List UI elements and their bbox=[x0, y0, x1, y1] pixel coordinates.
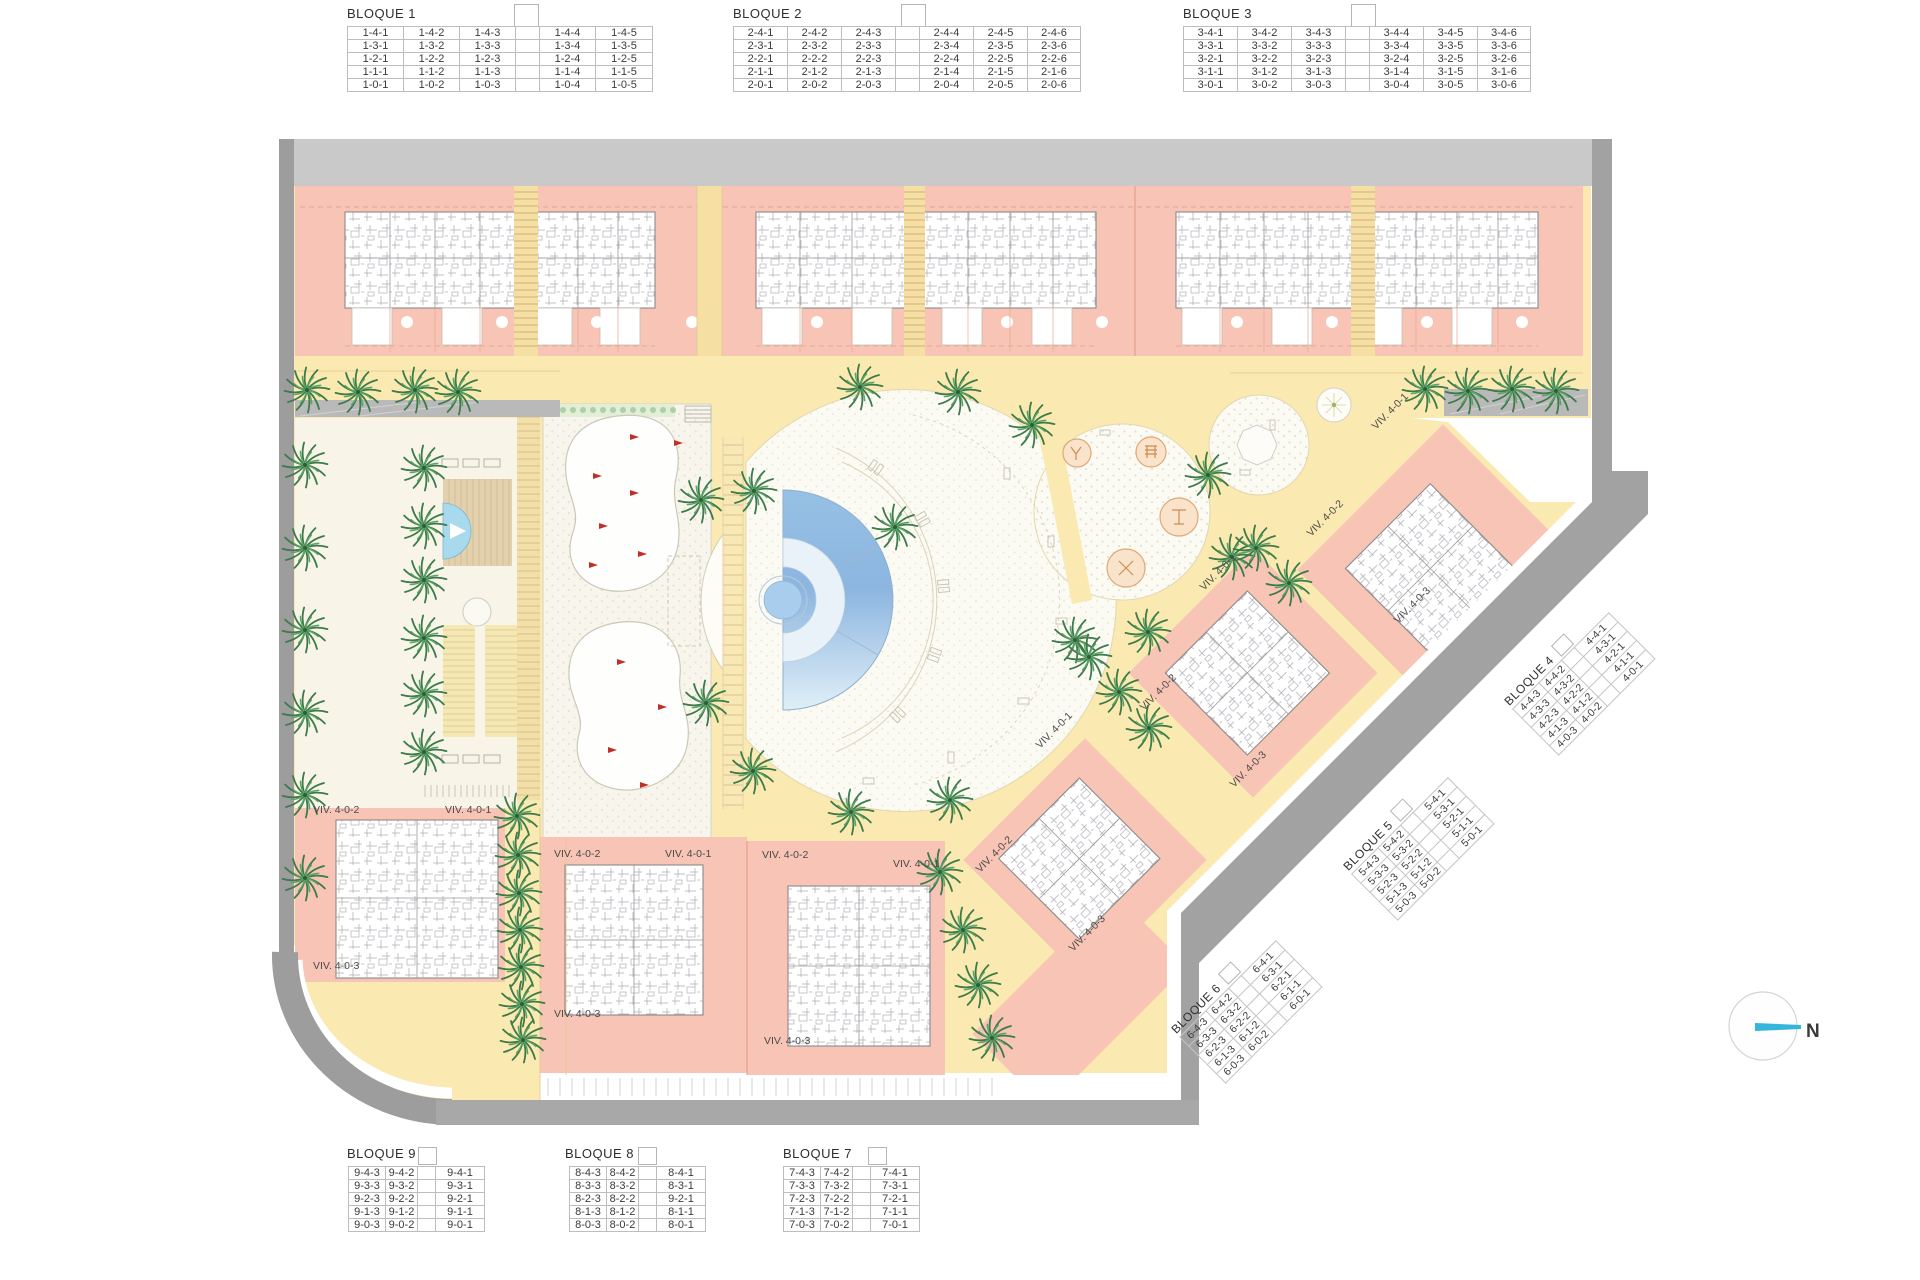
svg-text:N: N bbox=[1806, 1021, 1820, 1042]
svg-text:VIV. 4-0-2: VIV. 4-0-2 bbox=[762, 849, 808, 861]
svg-text:VIV. 4-0-1: VIV. 4-0-1 bbox=[445, 804, 491, 816]
svg-text:VIV. 4-0-1: VIV. 4-0-1 bbox=[893, 858, 939, 870]
svg-text:VIV. 4-0-2: VIV. 4-0-2 bbox=[313, 804, 359, 816]
svg-text:VIV. 4-0-3: VIV. 4-0-3 bbox=[554, 1008, 600, 1020]
svg-text:VIV. 4-0-3: VIV. 4-0-3 bbox=[764, 1035, 810, 1047]
svg-text:VIV. 4-0-1: VIV. 4-0-1 bbox=[665, 848, 711, 860]
svg-text:VIV. 4-0-3: VIV. 4-0-3 bbox=[313, 960, 359, 972]
svg-text:VIV. 4-0-2: VIV. 4-0-2 bbox=[554, 848, 600, 860]
